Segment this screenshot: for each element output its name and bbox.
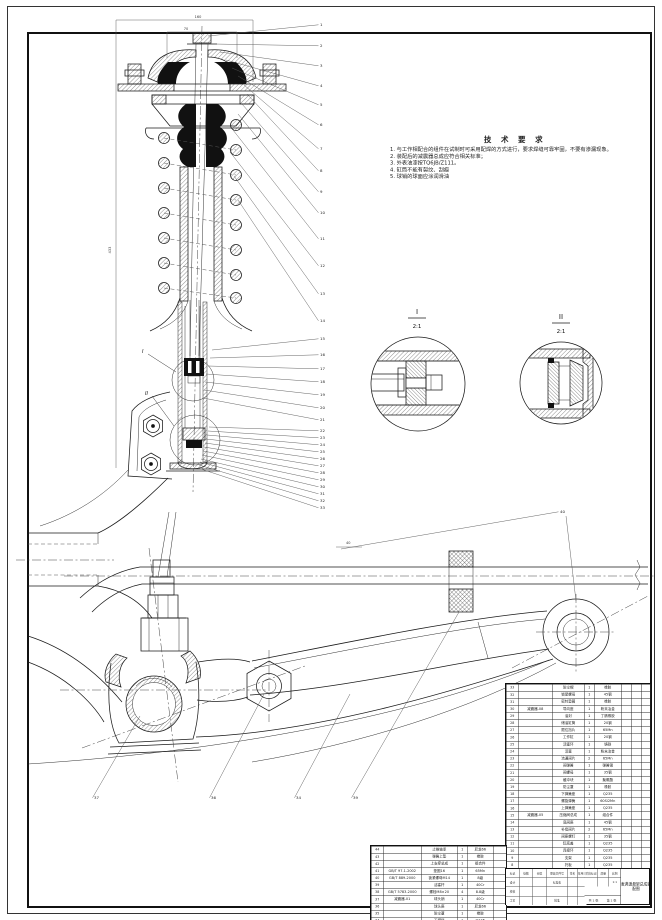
- bom-cell: 导向座: [552, 706, 584, 713]
- detail-i-scale: 2:1: [413, 324, 422, 330]
- bom-cell: [621, 706, 631, 713]
- bom-cell: 43: [371, 853, 383, 860]
- bom-cell: 丁腈橡胶: [594, 713, 621, 720]
- bom-cell: 12: [506, 833, 518, 840]
- bom-cell: [621, 819, 631, 826]
- bom-cell: 26: [506, 734, 518, 741]
- callout-number: 14: [320, 318, 325, 323]
- callout-number: 40: [560, 509, 565, 514]
- title-block-cell: 标准化: [547, 878, 568, 887]
- bom-cell: 1: [457, 868, 467, 875]
- bom-cell: 粉末冶金: [594, 748, 621, 755]
- shock-cylinder: [166, 300, 220, 471]
- bom-cell: 8级: [467, 875, 493, 882]
- bom-cell: 16: [506, 805, 518, 812]
- bom-cell: 45钢: [594, 819, 621, 826]
- bom-cell: 止推轴承: [421, 846, 457, 853]
- bom-cell: [641, 776, 650, 783]
- bom-cell: [621, 691, 631, 698]
- bom-cell: 65Mn: [594, 727, 621, 734]
- callout-number: 16: [320, 352, 325, 357]
- bom-cell: [383, 882, 421, 889]
- bom-cell: 27: [506, 727, 518, 734]
- bom-cell: 减震器-01: [383, 896, 421, 903]
- bom-cell: 1: [584, 720, 594, 727]
- bom-cell: 15: [506, 812, 518, 819]
- dim-overall-length: 433: [108, 247, 112, 254]
- callout-number: 11: [320, 236, 325, 241]
- bom-row: 38GB/T 5783-2000螺栓M8×2048.8级: [371, 889, 506, 896]
- title-block-scale-zone: 阶段标记 质量 比例 1:1 共 1 张 第 1 张: [585, 869, 621, 904]
- callout-number: 30: [320, 484, 325, 489]
- title-block-cell: 标记: [506, 869, 519, 878]
- bom-cell: [641, 713, 650, 720]
- bom-cell: Q235: [594, 847, 621, 854]
- bom-cell: 减震器-05: [518, 812, 552, 819]
- callout-number: 21: [320, 417, 325, 422]
- bom-cell: 25: [506, 741, 518, 748]
- bom-cell: [621, 748, 631, 755]
- callout-number: 33: [320, 505, 325, 510]
- bom-cell: 35钢: [594, 769, 621, 776]
- bom-cell: 1: [457, 846, 467, 853]
- bom-cell: [631, 741, 641, 748]
- title-block-cell: 处数: [520, 869, 533, 878]
- title-block-cell: [533, 896, 546, 905]
- bom-cell: [493, 860, 506, 867]
- bom-row: 10连接环1Q235: [506, 847, 650, 854]
- bom-cell: 10: [506, 847, 518, 854]
- bom-row: 40GB/T 889-2000锁紧螺母M1418级: [371, 875, 506, 882]
- bom-cell: [641, 847, 650, 854]
- bom-cell: [641, 855, 650, 862]
- detail-view-i: I 2:1: [371, 308, 465, 431]
- bom-cell: 锁紧螺母M14: [421, 875, 457, 882]
- bom-cell: [621, 727, 631, 734]
- bom-cell: 17: [506, 798, 518, 805]
- bom-cell: 橡胶: [594, 698, 621, 705]
- bom-row: 43弹簧上垫1橡胶: [371, 853, 506, 860]
- bom-row: 26工作缸120钢: [506, 734, 650, 741]
- bom-row: 39活塞杆140Cr: [371, 882, 506, 889]
- title-block-cell: [520, 878, 533, 887]
- bom-cell: 密封垫圈: [552, 698, 584, 705]
- callout-number: 17: [320, 366, 325, 371]
- bom-row: 30减震器-08导向座1粉末冶金: [506, 706, 650, 713]
- bom-row: 29油封1丁腈橡胶: [506, 713, 650, 720]
- bom-cell: 1: [584, 741, 594, 748]
- bom-cell: [518, 855, 552, 862]
- dim-mount-width: 70: [184, 27, 188, 31]
- bom-cell: [631, 805, 641, 812]
- bom-row: 20缓冲块1聚氨酯: [506, 776, 650, 783]
- bom-cell: [631, 855, 641, 862]
- callout-leader: [200, 462, 319, 494]
- title-block-cell: 设计: [506, 878, 519, 887]
- bom-cell: 铸铁: [594, 741, 621, 748]
- bom-cell: [631, 798, 641, 805]
- tech-requirement-item: 3. 外表油漆按TQ6JB/Z111。: [390, 160, 630, 167]
- technical-requirements: 技 术 要 求 1. 与工作相配合的组件在试制时可采用配焊的方式进行，要求焊缝可…: [390, 134, 640, 180]
- ball-joint: [60, 512, 305, 782]
- title-block-cell: [547, 887, 568, 896]
- bom-cell: 上支撑总成: [421, 860, 457, 867]
- title-block-cell: 批准: [547, 896, 568, 905]
- callout-leader: [208, 25, 319, 36]
- bom-cell: [641, 684, 650, 691]
- bom-cell: [631, 684, 641, 691]
- callout-leader: [203, 398, 319, 420]
- callout-number: 36: [211, 795, 216, 800]
- bom-cell: [621, 734, 631, 741]
- bom-cell: 1: [584, 769, 594, 776]
- callout-number: 28: [320, 470, 325, 475]
- bom-row: 28储油缸筒120钢: [506, 720, 650, 727]
- title-block-cell: [520, 887, 533, 896]
- bom-cell: [641, 706, 650, 713]
- bom-cell: 60Si2Mn: [594, 798, 621, 805]
- bom-cell: 支架: [552, 855, 584, 862]
- bom-cell: 连接环: [552, 847, 584, 854]
- detail-i-label: I: [416, 308, 418, 316]
- tech-requirements-list: 1. 与工作相配合的组件在试制时可采用配焊的方式进行，要求焊缝可靠牢固，不要有渗…: [390, 147, 630, 181]
- bom-cell: [631, 762, 641, 769]
- bom-cell: 1: [457, 882, 467, 889]
- callout-number: 19: [320, 392, 325, 397]
- bom-cell: 储油缸筒: [552, 720, 584, 727]
- bom-cell: [641, 784, 650, 791]
- bom-cell: 球头座: [421, 903, 457, 910]
- title-block-cell: 校核: [506, 887, 519, 896]
- bom-row: 19防尘罩1橡胶: [506, 784, 650, 791]
- bom-cell: 1: [457, 860, 467, 867]
- callout-leader: [93, 716, 141, 798]
- bom-cell: 1: [584, 748, 594, 755]
- bom-cell: 限位挡片: [552, 727, 584, 734]
- bom-row: 21阀螺母135钢: [506, 769, 650, 776]
- bom-cell: Q235: [594, 791, 621, 798]
- bom-cell: [518, 840, 552, 847]
- bom-cell: 减震器-08: [518, 706, 552, 713]
- bom-cell: 1: [584, 762, 594, 769]
- bom-row: 42上支撑总成1组合件: [371, 860, 506, 867]
- bom-cell: [518, 727, 552, 734]
- scale-label: 比例: [609, 869, 621, 878]
- bom-cell: 35: [371, 910, 383, 917]
- bom-cell: 30: [506, 706, 518, 713]
- bom-cell: [631, 840, 641, 847]
- bom-row: 12阀座螺钉135钢: [506, 833, 650, 840]
- title-block-cell: 分区: [533, 869, 546, 878]
- bom-cell: 补偿阀片: [552, 826, 584, 833]
- callout-leader: [295, 694, 351, 798]
- bom-cell: 22: [506, 762, 518, 769]
- bom-cell: 防尘罩: [552, 784, 584, 791]
- bom-cell: [631, 713, 641, 720]
- bom-cell: 28: [506, 720, 518, 727]
- dim-top-width: 160: [195, 15, 202, 19]
- bom-cell: [641, 720, 650, 727]
- bom-cell: [631, 847, 641, 854]
- section-mark-ii: II: [145, 391, 148, 397]
- bom-cell: [621, 713, 631, 720]
- bom-cell: 上弹簧座: [552, 805, 584, 812]
- callout-leader: [208, 366, 319, 369]
- bom-row: 11缸底盖1Q235: [506, 840, 650, 847]
- bom-cell: [631, 691, 641, 698]
- mass-label: 质量: [598, 869, 609, 878]
- bom-cell: 38: [371, 889, 383, 896]
- callout-leader: [212, 339, 319, 350]
- bom-cell: 活塞杆: [421, 882, 457, 889]
- drawing-title: 麦弗逊悬架总成装配图: [621, 869, 652, 904]
- bom-cell: 缸底盖: [552, 840, 584, 847]
- bom-cell: [518, 826, 552, 833]
- bom-cell: 1: [584, 727, 594, 734]
- bom-cell: 1: [584, 691, 594, 698]
- bom-cell: [631, 706, 641, 713]
- bom-cell: 防尘罩: [421, 910, 457, 917]
- bom-cell: 压缩阀总成: [552, 812, 584, 819]
- detail-view-ii: II 2:1: [520, 313, 602, 424]
- bom-cell: [641, 769, 650, 776]
- bom-cell: [631, 826, 641, 833]
- bom-row: 14底阀座145钢: [506, 819, 650, 826]
- bom-cell: [641, 798, 650, 805]
- sheet-number: 第 1 张: [607, 898, 617, 903]
- callout-leader: [242, 104, 319, 192]
- bom-row: 18下弹簧座1Q235: [506, 791, 650, 798]
- bom-cell: 油封: [552, 713, 584, 720]
- bom-cell: 1: [584, 776, 594, 783]
- tech-requirement-item: 5. 球销的球面应涂润滑油: [390, 174, 630, 181]
- bom-cell: [621, 776, 631, 783]
- bom-cell: 橡胶: [594, 684, 621, 691]
- bom-cell: [518, 684, 552, 691]
- bom-cell: [631, 819, 641, 826]
- bom-cell: 1: [584, 805, 594, 812]
- bom-cell: [518, 791, 552, 798]
- title-block-signature-grid: 标记处数分区更改文件号签名年月日设计标准化校核工艺批准: [506, 869, 585, 904]
- bom-cell: [493, 853, 506, 860]
- callout-number: 31: [320, 491, 325, 496]
- bump-stop: [177, 104, 227, 167]
- bom-cell: 1: [584, 798, 594, 805]
- bom-cell: 31: [506, 698, 518, 705]
- bom-cell: [621, 812, 631, 819]
- bom-row: 17螺旋弹簧160Si2Mn: [506, 798, 650, 805]
- bom-cell: [518, 769, 552, 776]
- bom-cell: [631, 791, 641, 798]
- bom-cell: [641, 698, 650, 705]
- bom-row: 41GB/T 97.1-2002垫圈16165Mn: [371, 868, 506, 875]
- bom-cell: 粉末冶金: [594, 706, 621, 713]
- callout-leader: [244, 85, 319, 149]
- bom-cell: [641, 812, 650, 819]
- bom-cell: 11: [506, 840, 518, 847]
- bom-cell: [631, 720, 641, 727]
- tech-requirements-title: 技 术 要 求: [390, 134, 640, 145]
- bom-cell: GB/T 5783-2000: [383, 889, 421, 896]
- bom-cell: [383, 853, 421, 860]
- callout-number: 8: [320, 168, 323, 173]
- bom-cell: GB/T 97.1-2002: [383, 868, 421, 875]
- bom-cell: [621, 840, 631, 847]
- callout-leader: [234, 176, 319, 294]
- bom-cell: 2: [584, 755, 594, 762]
- bom-cell: 下弹簧座: [552, 791, 584, 798]
- bom-cell: [621, 762, 631, 769]
- bom-cell: Q235: [594, 840, 621, 847]
- bom-cell: 1: [584, 791, 594, 798]
- bom-cell: 聚氨酯: [594, 776, 621, 783]
- bom-cell: 橡胶: [467, 853, 493, 860]
- bom-cell: [631, 755, 641, 762]
- bom-cell: [641, 762, 650, 769]
- bom-cell: [518, 755, 552, 762]
- callout-number: 26: [320, 456, 325, 461]
- bom-cell: 65Mn: [467, 868, 493, 875]
- bom-cell: 球头销: [421, 896, 457, 903]
- bom-cell: 尼龙66: [467, 846, 493, 853]
- bom-cell: 橡胶: [594, 784, 621, 791]
- bom-cell: [641, 741, 650, 748]
- bom-table-right: 33防尘帽1橡胶32锁紧螺母145钢31密封垫圈1橡胶30减震器-08导向座1粉…: [505, 683, 651, 870]
- bom-row: 32锁紧螺母145钢: [506, 691, 650, 698]
- callout-number: 3: [320, 63, 323, 68]
- bom-cell: [621, 833, 631, 840]
- bom-cell: [383, 860, 421, 867]
- bom-cell: 橡胶: [467, 910, 493, 917]
- callout-number: 7: [320, 146, 323, 151]
- bom-cell: [518, 762, 552, 769]
- bom-cell: 14: [506, 819, 518, 826]
- title-block-cell: [520, 896, 533, 905]
- bom-row: 44止推轴承1尼龙66: [371, 846, 506, 853]
- bom-cell: 1: [584, 840, 594, 847]
- callout-number: 5: [320, 102, 323, 107]
- bom-cell: 1: [457, 910, 467, 917]
- bom-row: 33防尘帽1橡胶: [506, 684, 650, 691]
- callout-leader: [341, 512, 559, 549]
- knuckle-bracket: [40, 392, 172, 526]
- callout-number: 34: [296, 795, 301, 800]
- bom-cell: [641, 755, 650, 762]
- control-arm: [28, 611, 556, 764]
- bom-cell: [641, 833, 650, 840]
- title-block-cell: 更改文件号: [547, 869, 568, 878]
- bom-cell: [621, 784, 631, 791]
- bom-cell: 32: [506, 691, 518, 698]
- stage-mark-label: 阶段标记: [585, 869, 598, 878]
- bom-cell: [518, 784, 552, 791]
- bom-cell: 65Mn: [594, 826, 621, 833]
- bom-row: 15减震器-05压缩阀总成1组合件: [506, 812, 650, 819]
- bom-cell: 1: [584, 784, 594, 791]
- callout-number: 9: [320, 189, 323, 194]
- bom-cell: 弹簧钢: [594, 762, 621, 769]
- callout-leader: [207, 435, 319, 445]
- bom-cell: 1: [584, 812, 594, 819]
- bom-cell: 45钢: [594, 691, 621, 698]
- callout-number: 29: [320, 477, 325, 482]
- callout-leader: [233, 130, 319, 239]
- bom-cell: [518, 748, 552, 755]
- callout-number: 24: [320, 442, 325, 447]
- bom-cell: [621, 720, 631, 727]
- callout-leader: [206, 374, 319, 382]
- callout-number: 25: [320, 449, 325, 454]
- bom-cell: [621, 769, 631, 776]
- callout-number: 22: [320, 428, 325, 433]
- bom-cell: 40Cr: [467, 896, 493, 903]
- tech-requirement-item: 2. 装配后的减震器总成应符合相关标准；: [390, 153, 630, 160]
- bom-cell: 20钢: [594, 734, 621, 741]
- arm-bushing-eye: [512, 594, 648, 672]
- bom-cell: 锁紧螺母: [552, 691, 584, 698]
- bom-cell: [621, 684, 631, 691]
- bom-cell: [518, 805, 552, 812]
- bom-cell: [518, 734, 552, 741]
- bom-cell: [518, 691, 552, 698]
- bom-row: 27限位挡片165Mn: [506, 727, 650, 734]
- bom-table-left: 44止推轴承1尼龙6643弹簧上垫1橡胶42上支撑总成1组合件41GB/T 97…: [370, 845, 507, 920]
- mass-value: [598, 878, 609, 887]
- bom-cell: 1: [584, 833, 594, 840]
- bom-cell: 35钢: [594, 833, 621, 840]
- bom-cell: [641, 691, 650, 698]
- tech-requirement-item: 4. 缸筒不能有裂纹、刮痕: [390, 167, 630, 174]
- bom-cell: 尼龙66: [467, 903, 493, 910]
- bom-cell: [621, 698, 631, 705]
- bom-cell: 40: [371, 875, 383, 882]
- bom-cell: 阀弹簧: [552, 762, 584, 769]
- bom-cell: 23: [506, 755, 518, 762]
- bom-cell: 4: [457, 889, 467, 896]
- callout-leader: [198, 468, 319, 508]
- bom-cell: [383, 846, 421, 853]
- callout-number: 20: [320, 405, 325, 410]
- title-block-cell: [568, 887, 577, 896]
- bom-cell: [631, 769, 641, 776]
- bom-cell: 13: [506, 826, 518, 833]
- bom-cell: [383, 903, 421, 910]
- bom-cell: Q235: [594, 805, 621, 812]
- bom-cell: [621, 755, 631, 762]
- callout-leader: [210, 694, 265, 798]
- bom-cell: 缓冲块: [552, 776, 584, 783]
- bom-cell: 工作缸: [552, 734, 584, 741]
- bom-cell: 1: [584, 713, 594, 720]
- bom-cell: 1: [457, 875, 467, 882]
- bom-cell: Q235: [594, 855, 621, 862]
- bom-cell: 阀座螺钉: [552, 833, 584, 840]
- bom-cell: 底阀座: [552, 819, 584, 826]
- bom-cell: [621, 791, 631, 798]
- bom-row: 25活塞环1铸铁: [506, 741, 650, 748]
- bom-cell: 防尘帽: [552, 684, 584, 691]
- bom-cell: 44: [371, 846, 383, 853]
- bom-cell: 组合件: [594, 812, 621, 819]
- callout-leader: [238, 200, 319, 321]
- bom-cell: 65Mn: [594, 755, 621, 762]
- bom-cell: [493, 910, 506, 917]
- bom-cell: [631, 727, 641, 734]
- bom-row: 36球头座1尼龙66: [371, 903, 506, 910]
- bom-cell: 8.8级: [467, 889, 493, 896]
- bom-cell: 活塞环: [552, 741, 584, 748]
- callout-number: 32: [320, 498, 325, 503]
